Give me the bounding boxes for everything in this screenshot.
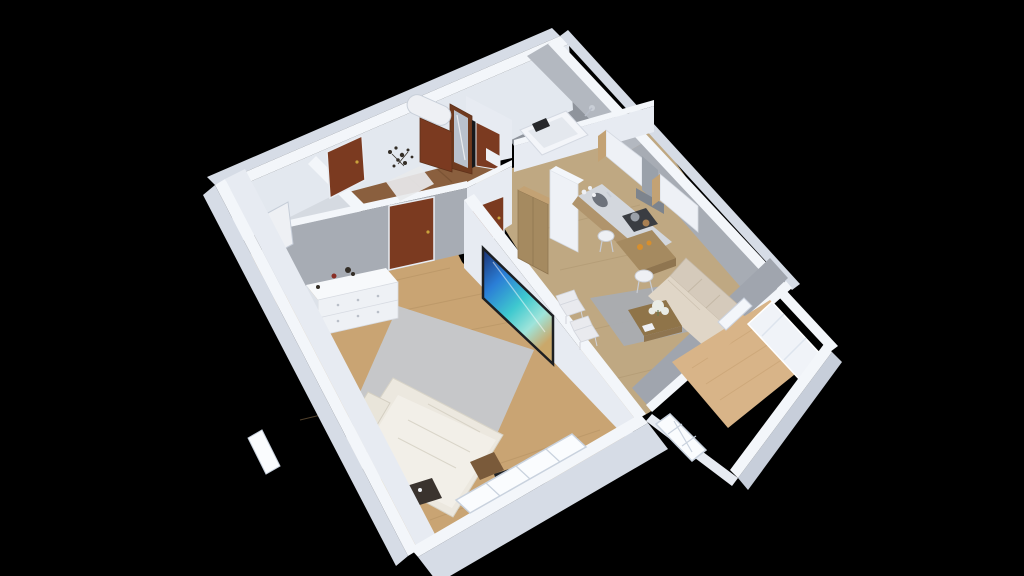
living-door-handle bbox=[498, 217, 501, 220]
pot-copper bbox=[643, 220, 650, 227]
floorplan-canvas[interactable] bbox=[0, 0, 1024, 576]
nightstand-cup bbox=[418, 488, 422, 492]
pot-steel bbox=[631, 213, 640, 222]
decor-red-bottle bbox=[332, 274, 337, 279]
hall-wardrobe-mirror[interactable] bbox=[450, 104, 472, 174]
bathroom-door-gap bbox=[472, 120, 476, 168]
decor-plant-2 bbox=[351, 272, 355, 276]
flowers-white-2 bbox=[661, 307, 669, 315]
flowers-white-3 bbox=[649, 308, 656, 315]
entrance-door-handle bbox=[355, 160, 358, 163]
decor-plant bbox=[345, 267, 351, 273]
amber-glass-1 bbox=[637, 244, 643, 250]
bedroom-door-handle bbox=[426, 230, 429, 233]
decor-candle bbox=[316, 285, 320, 289]
render-viewport[interactable] bbox=[0, 0, 1024, 576]
amber-glass-2 bbox=[647, 241, 652, 246]
bedroom-door[interactable] bbox=[389, 197, 434, 270]
